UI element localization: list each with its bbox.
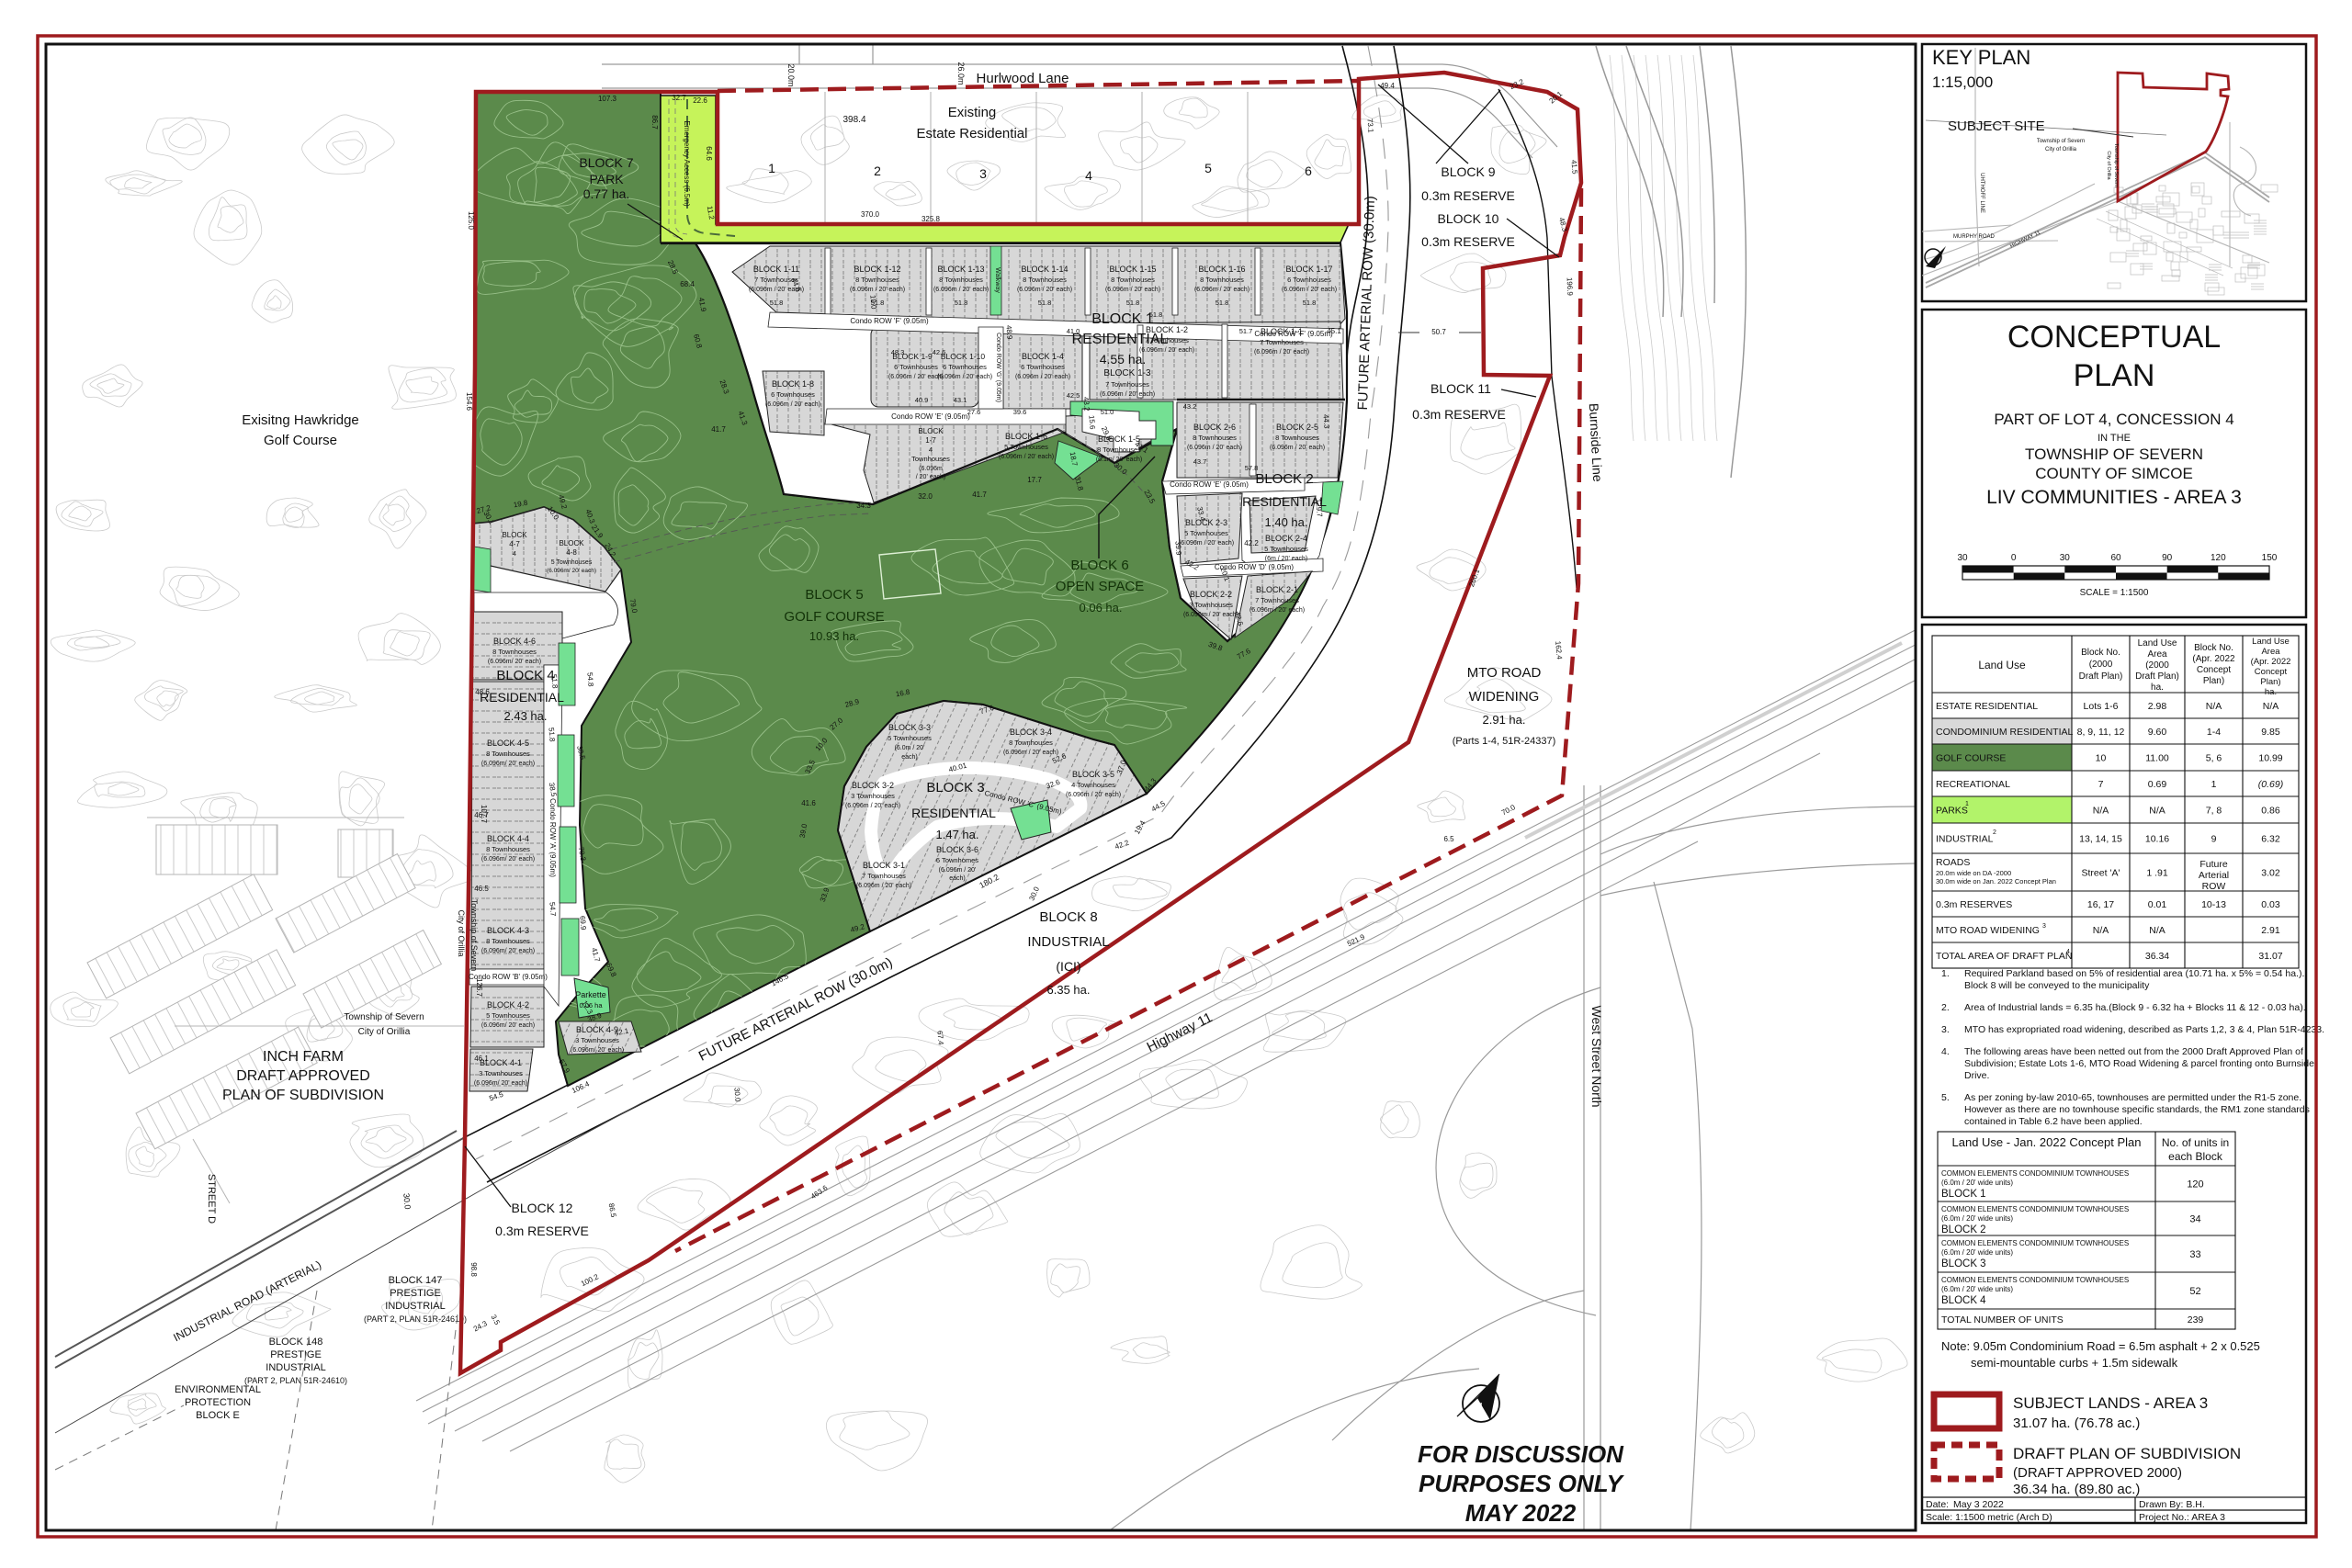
svg-text:Scale: 1:1500 metric (Arch D): Scale: 1:1500 metric (Arch D) (1926, 1512, 2052, 1523)
svg-text:30.0: 30.0 (401, 1193, 412, 1210)
svg-text:0.86: 0.86 (2261, 806, 2280, 817)
svg-text:22.6: 22.6 (693, 96, 707, 105)
svg-text:(6.096m / 20' each): (6.096m / 20' each) (1015, 374, 1070, 380)
svg-text:4-8: 4-8 (566, 548, 577, 557)
svg-text:8 Townhouses: 8 Townhouses (939, 276, 983, 284)
svg-text:398.4: 398.4 (842, 115, 865, 125)
svg-text:(6.096m/ 20' each): (6.096m/ 20' each) (474, 1080, 527, 1087)
svg-text:196.9: 196.9 (1566, 277, 1575, 297)
svg-text:BLOCK 2-4: BLOCK 2-4 (1265, 534, 1307, 543)
svg-text:6 Townhouses: 6 Townhouses (1021, 363, 1065, 371)
svg-text:(6.096m / 20': (6.096m / 20' (939, 867, 977, 874)
svg-text:0.3m RESERVE: 0.3m RESERVE (1421, 188, 1515, 203)
svg-text:BLOCK 12: BLOCK 12 (512, 1201, 573, 1215)
svg-text:RECREATIONAL: RECREATIONAL (1936, 779, 2010, 790)
svg-text:PLAN OF SUBDIVISION: PLAN OF SUBDIVISION (222, 1088, 384, 1103)
svg-text:Drawn By: B.H.: Drawn By: B.H. (2139, 1499, 2205, 1510)
svg-text:Land Use: Land Use (2138, 638, 2177, 649)
svg-text:Street 'A': Street 'A' (2082, 868, 2120, 879)
svg-text:N/A: N/A (2093, 925, 2109, 936)
svg-text:(6.096m / 20' each): (6.096m / 20' each) (1003, 750, 1058, 756)
svg-text:30.0: 30.0 (732, 1088, 741, 1103)
svg-text:39.9: 39.9 (1173, 541, 1182, 557)
svg-text:42.2: 42.2 (1244, 539, 1259, 547)
svg-text:8 Townhouses: 8 Townhouses (1023, 276, 1067, 284)
svg-text:GOLF COURSE: GOLF COURSE (1936, 753, 2006, 764)
svg-text:(6.096m/ 20' each): (6.096m/ 20' each) (481, 948, 535, 954)
svg-text:TOWNSHIP OF SEVERN: TOWNSHIP OF SEVERN (2025, 446, 2203, 463)
svg-text:8 Townhouses: 8 Townhouses (486, 750, 530, 758)
svg-text:BLOCK 4-2: BLOCK 4-2 (487, 1000, 529, 1010)
svg-text:Subdivision; Estate Lots 1-6,: Subdivision; Estate Lots 1-6, MTO Road W… (1964, 1058, 2314, 1069)
svg-text:No. of units in: No. of units in (2162, 1136, 2229, 1149)
svg-text:Date:: Date: (1926, 1499, 1949, 1510)
svg-text:BLOCK 3-4: BLOCK 3-4 (1010, 728, 1052, 737)
svg-text:4.: 4. (1941, 1046, 1950, 1057)
svg-text:2.91 ha.: 2.91 ha. (1483, 713, 1526, 727)
svg-text:Condo ROW 'E' (9.05m): Condo ROW 'E' (9.05m) (891, 412, 970, 421)
svg-text:PROTECTION: PROTECTION (185, 1397, 251, 1408)
svg-text:26.0m: 26.0m (956, 62, 966, 85)
svg-text:0.3m RESERVE: 0.3m RESERVE (1412, 407, 1506, 422)
svg-text:As per zoning by-law 2010-65,: As per zoning by-law 2010-65, townhouses… (1964, 1092, 2301, 1103)
svg-text:34: 34 (2189, 1214, 2200, 1225)
svg-text:41.7: 41.7 (972, 491, 987, 499)
svg-text:48.3: 48.3 (891, 348, 905, 356)
svg-text:Exisitng Hawkridge: Exisitng Hawkridge (242, 412, 359, 428)
svg-text:5 Townhouses: 5 Townhouses (1184, 529, 1228, 537)
svg-text:6 Townhomes: 6 Townhomes (936, 856, 978, 864)
svg-text:34.3: 34.3 (856, 502, 871, 510)
svg-text:1.47 ha.: 1.47 ha. (936, 828, 979, 841)
svg-text:(6.096m/ 20' each): (6.096m/ 20' each) (481, 761, 535, 767)
svg-text:PARKS: PARKS (1936, 806, 1968, 817)
svg-text:semi-mountable curbs + 1.5m si: semi-mountable curbs + 1.5m sidewalk (1971, 1356, 2178, 1370)
svg-text:6.5: 6.5 (1443, 835, 1454, 843)
svg-text:BLOCK 3-1: BLOCK 3-1 (863, 861, 905, 870)
svg-text:10.16: 10.16 (2145, 834, 2169, 845)
svg-text:8 Townhouses: 8 Townhouses (1009, 739, 1053, 747)
svg-text:Block No.: Block No. (2081, 648, 2120, 658)
svg-text:51.8: 51.8 (770, 299, 784, 307)
svg-text:BLOCK 2-1: BLOCK 2-1 (1256, 585, 1298, 594)
svg-text:City of Orillia: City of Orillia (457, 909, 466, 956)
svg-text:MAY 2022: MAY 2022 (1465, 1499, 1577, 1527)
svg-text:/ 20' each): / 20' each) (916, 474, 945, 480)
svg-text:(6.096m/ 20' each): (6.096m/ 20' each) (488, 659, 541, 665)
svg-text:MTO ROAD: MTO ROAD (1467, 665, 1542, 681)
svg-text:0.77 ha.: 0.77 ha. (583, 186, 630, 201)
svg-text:(6.096m / 20' each): (6.096m / 20' each) (1017, 287, 1072, 293)
svg-text:8, 9, 11, 12: 8, 9, 11, 12 (2077, 727, 2125, 738)
svg-text:(6.096m / 20' each): (6.096m / 20' each) (1100, 391, 1155, 398)
svg-text:ROADS: ROADS (1936, 857, 1970, 868)
svg-text:7 Townhouses: 7 Townhouses (1260, 338, 1304, 346)
svg-text:BLOCK 4-4: BLOCK 4-4 (487, 834, 529, 843)
svg-text:51.8: 51.8 (955, 299, 968, 307)
svg-text:54.8: 54.8 (585, 672, 594, 688)
svg-text:BLOCK 2-5: BLOCK 2-5 (1276, 423, 1318, 432)
svg-text:42.5: 42.5 (1067, 391, 1080, 400)
svg-text:(6.0m / 20' wide units): (6.0m / 20' wide units) (1941, 1285, 2013, 1293)
svg-text:1.: 1. (1941, 968, 1950, 979)
svg-text:(6.096m / 20' each): (6.096m / 20' each) (933, 287, 989, 293)
svg-text:(Parts 1-4, 51R-24337): (Parts 1-4, 51R-24337) (1453, 736, 1556, 747)
svg-text:UHTHOFF LINE: UHTHOFF LINE (1979, 173, 1984, 213)
svg-text:BLOCK 1-10: BLOCK 1-10 (941, 352, 985, 361)
svg-text:RESIDENTIAL: RESIDENTIAL (911, 806, 996, 820)
svg-text:BLOCK 3-2: BLOCK 3-2 (852, 781, 894, 790)
svg-text:4: 4 (929, 446, 933, 454)
svg-text:BLOCK 1-17: BLOCK 1-17 (1285, 265, 1332, 274)
svg-text:Note: 9.05m Condominium Road =: Note: 9.05m Condominium Road = 6.5m asph… (1941, 1339, 2260, 1353)
svg-text:Township of Severn: Township of Severn (469, 899, 479, 972)
svg-text:6 Townhouses: 6 Townhouses (894, 363, 938, 371)
svg-text:N/A: N/A (2093, 806, 2109, 817)
svg-text:TOTAL NUMBER OF UNITS: TOTAL NUMBER OF UNITS (1941, 1314, 2064, 1325)
svg-text:0.3m RESERVE: 0.3m RESERVE (1421, 234, 1515, 249)
svg-text:20.0m: 20.0m (786, 63, 796, 86)
svg-text:BLOCK 1-1: BLOCK 1-1 (1261, 327, 1303, 336)
svg-text:Lots 1-6: Lots 1-6 (2084, 701, 2119, 712)
svg-text:4: 4 (513, 551, 516, 558)
svg-text:2.91: 2.91 (2261, 925, 2280, 936)
svg-text:BLOCK 2: BLOCK 2 (1255, 471, 1313, 487)
svg-text:N: N (1474, 1400, 1482, 1414)
svg-text:10-13: 10-13 (2201, 899, 2226, 910)
svg-text:Township of Severn: Township of Severn (2113, 143, 2119, 187)
svg-text:10.0: 10.0 (868, 295, 877, 310)
svg-text:COMMON ELEMENTS CONDOMINIUM TO: COMMON ELEMENTS CONDOMINIUM TOWNHOUSES (1941, 1169, 2129, 1178)
svg-text:BLOCK 2-6: BLOCK 2-6 (1193, 423, 1236, 432)
svg-text:51.7: 51.7 (1239, 327, 1253, 335)
svg-text:MTO ROAD WIDENING: MTO ROAD WIDENING (1936, 925, 2040, 936)
svg-text:BLOCK 3: BLOCK 3 (1941, 1258, 1986, 1269)
svg-text:ha.: ha. (2265, 687, 2277, 697)
svg-text:8 Townhouses: 8 Townhouses (1275, 434, 1319, 442)
svg-text:INDUSTRIAL: INDUSTRIAL (266, 1362, 325, 1373)
svg-text:107.3: 107.3 (598, 95, 617, 103)
svg-text:COMMON ELEMENTS CONDOMINIUM TO: COMMON ELEMENTS CONDOMINIUM TOWNHOUSES (1941, 1205, 2129, 1213)
svg-text:(6.096m: (6.096m (919, 466, 943, 472)
svg-text:8 Townhouses: 8 Townhouses (1111, 276, 1155, 284)
svg-text:COMMON ELEMENTS CONDOMINIUM TO: COMMON ELEMENTS CONDOMINIUM TOWNHOUSES (1941, 1276, 2129, 1284)
svg-text:Condo ROW 'E' (9.05m): Condo ROW 'E' (9.05m) (1170, 480, 1249, 489)
svg-text:9.60: 9.60 (2148, 727, 2167, 738)
svg-text:8 Townhouses: 8 Townhouses (1200, 276, 1244, 284)
svg-text:41.5: 41.5 (1569, 160, 1578, 175)
svg-text:(PART 2, PLAN 51R-24610): (PART 2, PLAN 51R-24610) (364, 1314, 467, 1324)
svg-text:Estate Residential: Estate Residential (917, 126, 1028, 141)
svg-text:BLOCK 1-2: BLOCK 1-2 (1146, 325, 1188, 334)
svg-text:INCH FARM: INCH FARM (263, 1049, 344, 1065)
svg-text:0.69: 0.69 (2148, 779, 2167, 790)
svg-text:(6.096m / 20' each): (6.096m / 20' each) (1139, 347, 1194, 354)
svg-text:BLOCK 11: BLOCK 11 (1430, 381, 1491, 396)
svg-text:90: 90 (2162, 553, 2173, 563)
svg-text:120: 120 (2187, 1179, 2203, 1190)
svg-text:BLOCK 5: BLOCK 5 (805, 587, 863, 603)
svg-text:Arterial: Arterial (2199, 870, 2229, 881)
svg-text:Area of Industrial lands = 6: Area of Industrial lands = 6.35 ha.(Bloc… (1964, 1002, 2306, 1013)
svg-text:36.34: 36.34 (2145, 951, 2169, 962)
svg-text:Land Use - Jan. 2022 Concept P: Land Use - Jan. 2022 Concept Plan (1952, 1135, 2142, 1149)
svg-text:WIDENING: WIDENING (1469, 689, 1540, 705)
svg-text:STREET D: STREET D (206, 1174, 217, 1224)
svg-text:1: 1 (1965, 801, 1969, 807)
svg-text:BLOCK 1-4: BLOCK 1-4 (1022, 352, 1064, 361)
svg-text:BLOCK 1-11: BLOCK 1-11 (753, 265, 799, 274)
svg-text:50.7: 50.7 (1431, 328, 1446, 336)
svg-text:BLOCK 6: BLOCK 6 (1070, 558, 1128, 573)
svg-text:N/A: N/A (2263, 701, 2279, 712)
svg-text:Township of Severn: Township of Severn (2037, 139, 2085, 144)
svg-text:0: 0 (2011, 553, 2017, 563)
svg-text:BLOCK: BLOCK (502, 531, 527, 539)
svg-text:BLOCK: BLOCK (559, 539, 584, 547)
svg-text:Block 8 will be conveyed to th: Block 8 will be conveyed to the municipa… (1964, 980, 2150, 991)
svg-text:43.1: 43.1 (954, 396, 967, 404)
svg-text:(Apr. 2022: (Apr. 2022 (2251, 657, 2291, 667)
svg-text:(6.096m / 20' each): (6.096m / 20' each) (937, 374, 992, 380)
svg-text:3 Townhouses: 3 Townhouses (575, 1036, 619, 1044)
svg-text:32.7: 32.7 (672, 94, 686, 102)
svg-text:BLOCK 9: BLOCK 9 (1441, 164, 1495, 179)
svg-text:41.0: 41.0 (1067, 327, 1080, 335)
svg-text:Condo ROW 'A' (9.05m): Condo ROW 'A' (9.05m) (548, 798, 557, 877)
svg-text:1: 1 (2211, 779, 2217, 790)
svg-text:0.3m RESERVE: 0.3m RESERVE (495, 1224, 589, 1238)
svg-text:(6.096m / 20' each): (6.096m / 20' each) (845, 803, 900, 809)
svg-text:5 Townhouses: 5 Townhouses (888, 734, 932, 742)
svg-text:N/A: N/A (2206, 701, 2222, 712)
svg-text:West Street North: West Street North (1589, 1005, 1604, 1107)
svg-text:30: 30 (1957, 553, 1968, 563)
svg-text:5 Townhouses: 5 Townhouses (1004, 443, 1048, 451)
svg-text:(6.096m / 20' each): (6.096m / 20' each) (1105, 287, 1160, 293)
svg-text:49.4: 49.4 (1380, 82, 1395, 90)
svg-text:44.3: 44.3 (1321, 414, 1330, 430)
svg-text:Land Use: Land Use (1978, 659, 2026, 671)
svg-text:57.8: 57.8 (1245, 464, 1259, 472)
svg-text:42.6: 42.6 (933, 348, 946, 356)
svg-text:Concept: Concept (2197, 665, 2231, 675)
svg-text:INDUSTRIAL: INDUSTRIAL (1936, 834, 1994, 845)
svg-text:(Apr. 2022: (Apr. 2022 (2192, 654, 2235, 664)
svg-text:1 .91: 1 .91 (2146, 868, 2168, 879)
svg-text:86.7: 86.7 (650, 115, 659, 130)
svg-text:BLOCK 7: BLOCK 7 (579, 155, 633, 170)
svg-text:16, 17: 16, 17 (2087, 899, 2114, 910)
svg-text:OPEN SPACE: OPEN SPACE (1056, 579, 1144, 594)
svg-text:7 Townhouses: 7 Townhouses (1145, 336, 1189, 344)
svg-text:Concept: Concept (2255, 667, 2288, 677)
svg-text:60: 60 (2110, 553, 2121, 563)
svg-text:(6.096m / 20' each): (6.096m / 20' each) (850, 287, 905, 293)
svg-text:City of Orillia: City of Orillia (2045, 147, 2077, 152)
svg-text:BLOCK 3: BLOCK 3 (926, 780, 984, 795)
svg-text:BLOCK 4-9: BLOCK 4-9 (576, 1025, 618, 1034)
svg-text:RESIDENTIAL: RESIDENTIAL (480, 690, 564, 705)
svg-text:Walkway: Walkway (994, 267, 1001, 293)
svg-text:3: 3 (979, 166, 987, 181)
svg-text:51.8: 51.8 (1038, 299, 1052, 307)
svg-text:Draft Plan): Draft Plan) (2079, 671, 2123, 682)
svg-text:Required Parkland based on 5%: Required Parkland based on 5% of residen… (1964, 968, 2304, 979)
svg-text:4: 4 (1085, 168, 1092, 183)
svg-text:5, 6: 5, 6 (2206, 753, 2222, 764)
svg-text:BLOCK 2-2: BLOCK 2-2 (1190, 590, 1232, 599)
svg-text:51.8: 51.8 (1126, 299, 1140, 307)
svg-text:(6.0m / 20' wide units): (6.0m / 20' wide units) (1941, 1214, 2013, 1223)
svg-text:SUBJECT LANDS - AREA 3: SUBJECT LANDS - AREA 3 (2013, 1394, 2208, 1412)
svg-text:3.02: 3.02 (2261, 868, 2280, 879)
svg-text:(6.096m/ 20' each): (6.096m/ 20' each) (571, 1047, 624, 1054)
svg-text:46.1: 46.1 (474, 1055, 489, 1063)
svg-text:(DRAFT APPROVED 2000): (DRAFT APPROVED 2000) (2013, 1465, 2182, 1481)
svg-text:3 Townhouses: 3 Townhouses (479, 1069, 523, 1077)
svg-text:each Block: each Block (2168, 1150, 2223, 1163)
svg-text:BLOCK 3-6: BLOCK 3-6 (936, 845, 978, 854)
svg-text:BLOCK 3-5: BLOCK 3-5 (1072, 770, 1114, 779)
svg-text:(ICI): (ICI) (1056, 959, 1080, 974)
svg-text:Golf Course: Golf Course (264, 433, 337, 448)
svg-text:64.6: 64.6 (705, 146, 713, 161)
svg-text:The following areas have been: The following areas have been netted out… (1964, 1046, 2303, 1057)
svg-text:125.0: 125.0 (467, 211, 475, 231)
svg-text:6 Townhouses: 6 Townhouses (771, 390, 815, 399)
svg-text:City of Orillia: City of Orillia (358, 1027, 411, 1037)
svg-text:30: 30 (2060, 553, 2071, 563)
svg-text:7 Townhouses: 7 Townhouses (1105, 380, 1149, 389)
svg-text:120: 120 (2211, 553, 2226, 563)
svg-text:ROW: ROW (2202, 881, 2226, 892)
svg-text:PRESTIGE: PRESTIGE (390, 1288, 441, 1299)
svg-text:Plan): Plan) (2203, 676, 2224, 686)
svg-text:2: 2 (874, 164, 881, 178)
svg-text:8 Townhouses: 8 Townhouses (492, 648, 537, 656)
svg-text:PURPOSES ONLY: PURPOSES ONLY (1419, 1470, 1625, 1497)
svg-text:City of Orillia: City of Orillia (2106, 151, 2111, 180)
svg-text:RESIDENTIAL: RESIDENTIAL (1242, 494, 1327, 509)
svg-text:8 Townhouses: 8 Townhouses (486, 937, 530, 945)
svg-text:51.0: 51.0 (1101, 408, 1114, 416)
svg-text:33: 33 (2189, 1249, 2200, 1260)
svg-text:BLOCK 148: BLOCK 148 (269, 1337, 323, 1348)
svg-text:PART OF LOT 4, CONCESSION 4: PART OF LOT 4, CONCESSION 4 (1994, 411, 2233, 428)
svg-text:BLOCK 3-3: BLOCK 3-3 (888, 723, 931, 732)
svg-text:TOTAL AREA OF DRAFT PLAN: TOTAL AREA OF DRAFT PLAN (1936, 951, 2072, 962)
svg-text:51.8: 51.8 (1303, 299, 1317, 307)
svg-text:(6.0m / 20': (6.0m / 20' (895, 745, 925, 751)
svg-text:ha.: ha. (2151, 682, 2164, 693)
svg-text:13, 14, 15: 13, 14, 15 (2079, 834, 2122, 845)
svg-text:67.4: 67.4 (935, 1031, 944, 1046)
svg-text:IN THE: IN THE (2098, 433, 2131, 444)
svg-text:6 Townhouses: 6 Townhouses (943, 363, 987, 371)
svg-text:325.8: 325.8 (922, 215, 941, 223)
svg-text:BLOCK 4: BLOCK 4 (496, 668, 554, 683)
svg-text:contained in Table 6.2 have be: contained in Table 6.2 have been applied… (1964, 1116, 2143, 1127)
svg-text:52: 52 (2189, 1286, 2200, 1297)
svg-text:8 Townhouses: 8 Townhouses (1193, 434, 1237, 442)
svg-text:5.: 5. (1941, 1092, 1950, 1103)
svg-text:BLOCK 1-15: BLOCK 1-15 (1109, 265, 1156, 274)
svg-text:30.0m wide on Jan. 2022 Concep: 30.0m wide on Jan. 2022 Concept Plan (1936, 877, 2056, 886)
svg-text:3: 3 (2042, 923, 2046, 930)
svg-text:CONDOMINIUM RESIDENTIAL: CONDOMINIUM RESIDENTIAL (1936, 727, 2074, 738)
svg-text:1-7: 1-7 (925, 436, 936, 445)
svg-text:Condo ROW 'F' (9.05m): Condo ROW 'F' (9.05m) (850, 317, 929, 325)
svg-text:Parkette: Parkette (575, 990, 606, 999)
svg-text:41.7: 41.7 (711, 425, 726, 434)
svg-text:54.7: 54.7 (548, 902, 557, 918)
svg-text:4 Townhouses: 4 Townhouses (1071, 781, 1115, 789)
svg-text:0.03: 0.03 (2261, 899, 2280, 910)
svg-text:126.7: 126.7 (475, 978, 483, 998)
svg-text:5: 5 (1204, 161, 1212, 175)
svg-text:Block No.: Block No. (2194, 643, 2233, 653)
svg-text:68.4: 68.4 (680, 280, 695, 288)
svg-text:43.2: 43.2 (1081, 397, 1091, 412)
svg-text:(6.096m / 20' each): (6.096m / 20' each) (1194, 287, 1249, 293)
svg-text:(6.096m / 20' each): (6.096m / 20' each) (856, 883, 911, 889)
svg-text:5 Townhouses: 5 Townhouses (486, 1011, 530, 1020)
svg-text:4-7: 4-7 (509, 540, 520, 548)
svg-text:43.7: 43.7 (1193, 457, 1207, 466)
svg-text:(6.096m/ 20' each): (6.096m/ 20' each) (481, 856, 535, 863)
svg-text:Townhouses: Townhouses (911, 455, 950, 463)
svg-text:8 Townhouses: 8 Townhouses (855, 276, 899, 284)
svg-text:27.6: 27.6 (967, 408, 981, 416)
svg-text:0.06 ha.: 0.06 ha. (1080, 601, 1123, 615)
svg-text:(2000: (2000 (2089, 660, 2113, 670)
svg-text:May 3 2022: May 3 2022 (1953, 1499, 2004, 1510)
svg-text:(6.096m / 20' each): (6.096m / 20' each) (1249, 607, 1305, 614)
svg-text:BLOCK 1-8: BLOCK 1-8 (772, 379, 814, 389)
svg-text:46.7: 46.7 (474, 811, 489, 819)
svg-text:2.98: 2.98 (2148, 701, 2167, 712)
svg-text:N/A: N/A (2149, 925, 2165, 936)
svg-text:150: 150 (2262, 553, 2278, 563)
svg-text:(6.096m / 20' each): (6.096m / 20' each) (888, 374, 944, 380)
svg-text:MURPHY ROAD: MURPHY ROAD (1953, 234, 1996, 240)
svg-text:7 Townhouses: 7 Townhouses (862, 872, 906, 880)
svg-text:6: 6 (1305, 164, 1312, 178)
svg-text:SCALE = 1:1500: SCALE = 1:1500 (2080, 588, 2149, 598)
svg-text:COUNTY OF SIMCOE: COUNTY OF SIMCOE (2035, 465, 2193, 482)
svg-text:40.9: 40.9 (915, 396, 929, 404)
svg-text:1-4: 1-4 (2207, 727, 2221, 738)
svg-text:Township of Severn: Township of Severn (344, 1012, 424, 1022)
svg-text:0.3m RESERVES: 0.3m RESERVES (1936, 899, 2012, 910)
svg-text:BLOCK 8: BLOCK 8 (1039, 909, 1097, 925)
svg-text:PARK: PARK (589, 172, 624, 186)
svg-text:INDUSTRIAL: INDUSTRIAL (385, 1301, 445, 1312)
svg-text:(6.096m / 20' each): (6.096m / 20' each) (1066, 792, 1121, 798)
svg-text:48.6: 48.6 (475, 688, 490, 696)
svg-text:BLOCK 2: BLOCK 2 (1941, 1224, 1986, 1235)
svg-text:(6.0m / 20' wide units): (6.0m / 20' wide units) (1941, 1248, 2013, 1257)
svg-text:(6.096m / 20' each): (6.096m / 20' each) (1270, 445, 1325, 451)
svg-text:INDUSTRIAL: INDUSTRIAL (1027, 934, 1109, 950)
svg-text:48.9: 48.9 (1004, 325, 1013, 341)
svg-text:BLOCK 147: BLOCK 147 (389, 1275, 443, 1286)
svg-text:17.7: 17.7 (1027, 476, 1042, 484)
svg-text:8 Townhouses: 8 Townhouses (486, 845, 530, 853)
svg-text:(6.096m / 20' each): (6.096m / 20' each) (765, 401, 820, 408)
svg-text:7 Townhouses: 7 Townhouses (1255, 596, 1299, 604)
